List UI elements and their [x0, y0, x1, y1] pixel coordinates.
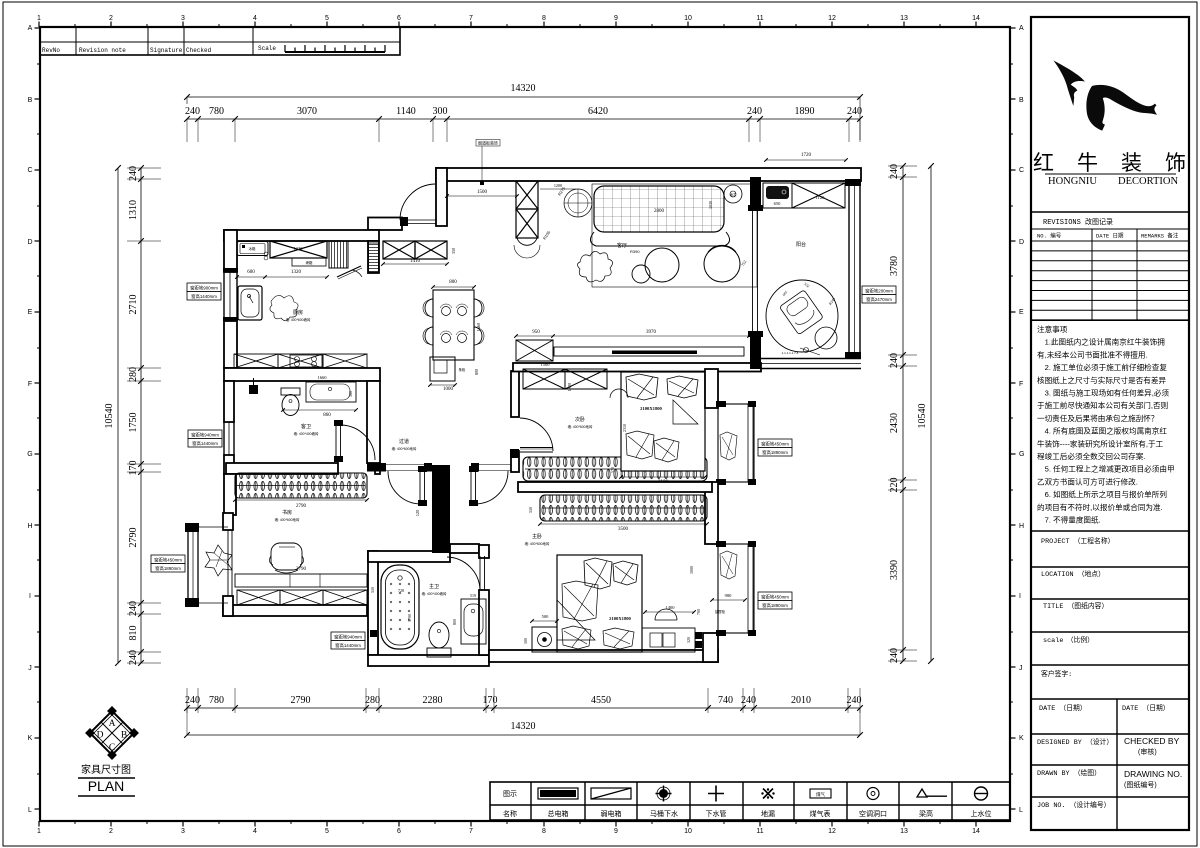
- svg-text:3: 3: [181, 828, 185, 835]
- svg-text:窗高1890mm: 窗高1890mm: [762, 602, 788, 609]
- svg-text:JOB NO. （设计编号）: JOB NO. （设计编号）: [1037, 800, 1110, 810]
- svg-text:740: 740: [718, 695, 733, 706]
- svg-text:1310: 1310: [128, 200, 139, 220]
- svg-text:10540: 10540: [104, 404, 115, 429]
- svg-text:13: 13: [900, 15, 908, 22]
- svg-text:2430: 2430: [889, 413, 900, 433]
- svg-text:2. 施工单位必须于施工前仔细检查复: 2. 施工单位必须于施工前仔细检查复: [1037, 362, 1167, 372]
- svg-text:810: 810: [128, 626, 139, 641]
- svg-text:2790: 2790: [291, 695, 311, 706]
- svg-text:3. 图纸与施工现场如有任何差异,必须: 3. 图纸与施工现场如有任何差异,必须: [1037, 388, 1169, 398]
- svg-text:墙: 400*600地砖: 墙: 400*600地砖: [525, 541, 550, 546]
- svg-text:牛装饰----家装研究所设计室所有,于工: 牛装饰----家装研究所设计室所有,于工: [1037, 438, 1164, 448]
- svg-text:红牛装饰: 红牛装饰: [1033, 152, 1200, 175]
- svg-text:240: 240: [747, 106, 762, 117]
- svg-text:5. 任何工程上之增减更改项目必须由甲: 5. 任何工程上之增减更改项目必须由甲: [1037, 464, 1175, 474]
- svg-text:CHECKED BY: CHECKED BY: [1124, 736, 1180, 746]
- svg-text:10: 10: [684, 828, 692, 835]
- svg-text:scale （比例）: scale （比例）: [1043, 635, 1094, 645]
- svg-text:G: G: [1019, 451, 1024, 458]
- svg-text:14320: 14320: [511, 721, 536, 732]
- svg-text:乙双方书面认可方可进行修改.: 乙双方书面认可方可进行修改.: [1037, 476, 1138, 486]
- svg-text:1: 1: [37, 828, 41, 835]
- svg-text:H: H: [1019, 523, 1024, 530]
- svg-text:800: 800: [452, 619, 457, 625]
- svg-text:LOCATION （地点）: LOCATION （地点）: [1041, 569, 1105, 579]
- svg-text:HONGNIU: HONGNIU: [1048, 176, 1097, 187]
- svg-text:6420: 6420: [588, 106, 608, 117]
- svg-text:2: 2: [109, 15, 113, 22]
- svg-text:1120: 1120: [816, 195, 826, 200]
- svg-text:阳台: 阳台: [796, 241, 806, 248]
- svg-text:B: B: [121, 731, 127, 741]
- svg-text:窗距地900mm: 窗距地900mm: [190, 285, 218, 292]
- svg-text:B: B: [28, 97, 33, 104]
- svg-text:I: I: [29, 593, 31, 600]
- svg-text:DATE （日期）: DATE （日期）: [1122, 704, 1170, 713]
- svg-text:下水管: 下水管: [706, 809, 727, 818]
- svg-text:D: D: [27, 239, 32, 246]
- svg-text:于施工前尽快通知本公司有关部门,否则: 于施工前尽快通知本公司有关部门,否则: [1037, 400, 1168, 410]
- svg-text:G: G: [27, 451, 32, 458]
- svg-text:570: 570: [610, 467, 615, 473]
- svg-text:7: 7: [469, 828, 473, 835]
- svg-text:3970: 3970: [646, 330, 657, 335]
- svg-text:1000: 1000: [443, 387, 454, 392]
- svg-text:RevNo: RevNo: [42, 47, 60, 54]
- svg-text:窗距地940mm: 窗距地940mm: [334, 634, 362, 641]
- svg-text:抽屉柜: 抽屉柜: [715, 609, 726, 614]
- svg-text:梁高: 梁高: [919, 809, 933, 818]
- svg-text:马桶下水: 马桶下水: [650, 809, 678, 818]
- svg-text:2790: 2790: [128, 528, 139, 548]
- svg-text:9: 9: [614, 828, 618, 835]
- svg-text:空调洞口: 空调洞口: [859, 809, 887, 818]
- svg-text:C: C: [109, 743, 115, 753]
- svg-text:墙: 400*600地砖: 墙: 400*600地砖: [275, 517, 300, 522]
- svg-text:核图纸上之尺寸与实际尺寸是否有差异: 核图纸上之尺寸与实际尺寸是否有差异: [1037, 375, 1166, 385]
- svg-text:2310: 2310: [622, 424, 627, 432]
- svg-text:A: A: [109, 719, 116, 729]
- svg-text:墙: 400*400墙砖: 墙: 400*400墙砖: [422, 591, 447, 596]
- svg-text:300: 300: [433, 106, 448, 117]
- svg-text:D: D: [97, 731, 104, 741]
- svg-text:11: 11: [756, 828, 763, 835]
- svg-text:墙: 400*600地砖: 墙: 400*600地砖: [392, 446, 417, 451]
- svg-text:120: 120: [415, 510, 420, 516]
- svg-text:墙: 400*600地砖: 墙: 400*600地砖: [568, 424, 593, 429]
- svg-text:煤气表: 煤气表: [810, 809, 831, 818]
- svg-text:240: 240: [185, 106, 200, 117]
- svg-text:厨房: 厨房: [293, 309, 303, 316]
- svg-text:上水位: 上水位: [971, 809, 992, 818]
- svg-text:1410: 1410: [410, 259, 421, 264]
- svg-text:Signature: Signature: [150, 47, 183, 54]
- svg-text:728: 728: [398, 588, 404, 593]
- svg-text:2280: 2280: [423, 695, 443, 706]
- svg-text:2100X1800: 2100X1800: [640, 406, 662, 411]
- svg-text:240: 240: [847, 106, 862, 117]
- svg-text:1720: 1720: [801, 153, 812, 158]
- svg-text:窗高1440mm: 窗高1440mm: [192, 440, 218, 447]
- svg-text:860: 860: [323, 413, 331, 418]
- svg-text:2790: 2790: [296, 567, 307, 572]
- svg-text:注意事项: 注意事项: [1037, 324, 1068, 334]
- svg-text:3500: 3500: [618, 527, 629, 532]
- svg-text:A: A: [28, 25, 33, 32]
- svg-text:780: 780: [209, 106, 224, 117]
- svg-text:煤气: 煤气: [816, 791, 825, 798]
- svg-text:烟道板装饰: 烟道板装饰: [478, 140, 498, 146]
- svg-text:11: 11: [756, 15, 763, 22]
- svg-text:14320: 14320: [511, 83, 536, 94]
- svg-text:1.1.1.1.1.7.8: 1.1.1.1.1.7.8: [782, 351, 799, 355]
- svg-text:客户签字:: 客户签字:: [1041, 669, 1072, 679]
- svg-text:800: 800: [474, 369, 479, 375]
- svg-text:窗高1890mm: 窗高1890mm: [155, 565, 181, 572]
- svg-text:TITLE （图纸内容）: TITLE （图纸内容）: [1043, 601, 1108, 611]
- svg-text:程竣工后必须全数交回公司存案.: 程竣工后必须全数交回公司存案.: [1037, 451, 1145, 461]
- svg-text:3: 3: [181, 15, 185, 22]
- svg-text:2710: 2710: [128, 295, 139, 315]
- svg-text:1320: 1320: [291, 270, 302, 275]
- svg-text:12: 12: [828, 828, 836, 835]
- svg-text:1660: 1660: [318, 375, 328, 380]
- svg-text:总电箱: 总电箱: [548, 809, 569, 818]
- svg-text:6: 6: [397, 828, 401, 835]
- svg-text:墙: 400*400墙砖: 墙: 400*400墙砖: [294, 431, 319, 436]
- svg-text:过道: 过道: [399, 438, 409, 445]
- svg-text:519: 519: [470, 593, 476, 598]
- svg-text:客厅: 客厅: [617, 242, 627, 249]
- svg-text:C: C: [1019, 167, 1024, 174]
- svg-text:的项目有不符时,以报价单或合同为准.: 的项目有不符时,以报价单或合同为准.: [1037, 502, 1163, 512]
- svg-text:1500: 1500: [541, 362, 551, 367]
- svg-text:窗距地940mm: 窗距地940mm: [191, 432, 219, 439]
- svg-text:2800: 2800: [654, 209, 665, 214]
- svg-text:4. 所有底图及蓝图之版权均属南京红: 4. 所有底图及蓝图之版权均属南京红: [1037, 426, 1167, 436]
- svg-text:14: 14: [972, 15, 980, 22]
- svg-text:1: 1: [37, 15, 41, 22]
- svg-text:PLAN: PLAN: [88, 778, 125, 794]
- svg-text:C: C: [27, 167, 32, 174]
- svg-text:4: 4: [253, 15, 257, 22]
- svg-text:1890: 1890: [795, 106, 815, 117]
- svg-text:DECORTION: DECORTION: [1118, 176, 1178, 187]
- svg-text:J: J: [28, 665, 32, 672]
- svg-text:DESIGNED BY （设计）: DESIGNED BY （设计）: [1037, 737, 1113, 747]
- svg-text:280: 280: [128, 367, 139, 382]
- svg-text:500: 500: [523, 638, 528, 644]
- svg-text:窗距地450mm: 窗距地450mm: [154, 557, 182, 564]
- svg-text:1700: 1700: [407, 614, 412, 622]
- svg-text:4: 4: [253, 828, 257, 835]
- svg-text:13: 13: [900, 828, 908, 835]
- svg-text:5: 5: [325, 828, 329, 835]
- svg-text:10540: 10540: [917, 404, 928, 429]
- svg-text:F: F: [1019, 381, 1023, 388]
- svg-text:窗距地450mm: 窗距地450mm: [761, 594, 789, 601]
- svg-text:1220: 1220: [294, 246, 304, 251]
- svg-text:地芯: 地芯: [730, 192, 737, 197]
- svg-text:Checked: Checked: [186, 47, 212, 54]
- svg-text:520: 520: [686, 637, 691, 643]
- svg-text:冰箱: 冰箱: [249, 246, 256, 251]
- svg-text:980: 980: [725, 593, 733, 598]
- svg-text:1140: 1140: [396, 106, 416, 117]
- svg-text:主卧: 主卧: [532, 533, 542, 540]
- svg-text:1000: 1000: [689, 566, 694, 574]
- svg-text:700: 700: [696, 609, 701, 615]
- svg-text:950: 950: [532, 330, 540, 335]
- svg-text:1460: 1460: [476, 323, 481, 331]
- svg-text:H: H: [27, 523, 32, 530]
- svg-text:K: K: [1019, 735, 1024, 742]
- svg-text:3390: 3390: [889, 560, 900, 580]
- svg-text:2: 2: [109, 828, 113, 835]
- svg-text:3780: 3780: [889, 256, 900, 276]
- svg-text:书房: 书房: [282, 509, 292, 516]
- svg-text:550: 550: [528, 507, 533, 513]
- svg-text:(图纸编号): (图纸编号): [1124, 780, 1157, 789]
- svg-text:F: F: [28, 381, 32, 388]
- svg-text:条柜: 条柜: [459, 367, 466, 372]
- svg-text:1500: 1500: [477, 190, 488, 195]
- svg-text:1750: 1750: [128, 413, 139, 433]
- svg-text:DATE 日期: DATE 日期: [1096, 233, 1124, 240]
- svg-text:2010: 2010: [791, 695, 811, 706]
- svg-text:窗高2470mm: 窗高2470mm: [866, 296, 892, 303]
- svg-text:650: 650: [774, 201, 782, 206]
- svg-text:3070: 3070: [297, 106, 317, 117]
- svg-text:1800: 1800: [567, 383, 572, 391]
- svg-text:L: L: [1019, 807, 1023, 814]
- svg-text:I: I: [1019, 593, 1021, 600]
- svg-text:DATE （日期）: DATE （日期）: [1039, 704, 1087, 713]
- svg-text:350: 350: [451, 248, 456, 254]
- svg-text:家具尺寸图: 家具尺寸图: [81, 763, 131, 776]
- svg-text:D: D: [1019, 239, 1024, 246]
- svg-text:6: 6: [397, 15, 401, 22]
- svg-text:(审核): (审核): [1138, 747, 1157, 756]
- svg-text:NO. 编号: NO. 编号: [1037, 232, 1062, 240]
- svg-text:DRAWN BY （绘图）: DRAWN BY （绘图）: [1037, 768, 1101, 778]
- svg-text:240: 240: [847, 695, 862, 706]
- svg-text:B: B: [1019, 97, 1024, 104]
- svg-text:280: 280: [365, 695, 380, 706]
- svg-text:560: 560: [348, 391, 353, 397]
- svg-text:2100X1800: 2100X1800: [609, 616, 631, 621]
- svg-text:1030: 1030: [708, 201, 713, 209]
- svg-text:主卫: 主卫: [429, 583, 439, 590]
- svg-text:DRAWING NO.: DRAWING NO.: [1124, 769, 1182, 779]
- svg-text:次卧: 次卧: [575, 416, 585, 423]
- svg-text:5: 5: [325, 15, 329, 22]
- svg-text:600: 600: [247, 270, 255, 275]
- svg-text:8: 8: [542, 828, 546, 835]
- svg-text:R390: R390: [630, 249, 640, 254]
- svg-text:窗高1890mm: 窗高1890mm: [762, 449, 788, 456]
- svg-text:A: A: [1019, 25, 1024, 32]
- svg-text:窗距地200mm: 窗距地200mm: [865, 288, 893, 295]
- svg-text:1.此图纸内之设计属南京红牛装饰拥: 1.此图纸内之设计属南京红牛装饰拥: [1037, 337, 1165, 347]
- svg-text:4550: 4550: [591, 695, 611, 706]
- svg-text:K: K: [28, 735, 33, 742]
- svg-text:L: L: [28, 807, 32, 814]
- svg-text:REVISIONS 改图记录: REVISIONS 改图记录: [1043, 217, 1113, 227]
- svg-text:170: 170: [483, 695, 498, 706]
- svg-text:J: J: [1019, 665, 1023, 672]
- svg-text:窗高1440mm: 窗高1440mm: [191, 293, 217, 300]
- svg-text:弱电箱: 弱电箱: [601, 809, 622, 818]
- svg-text:E: E: [28, 309, 33, 316]
- svg-text:10: 10: [684, 15, 692, 22]
- svg-text:一切责任及后果将由承包之施刮怀？: 一切责任及后果将由承包之施刮怀？: [1037, 413, 1159, 423]
- svg-text:1400: 1400: [666, 605, 676, 610]
- svg-text:170: 170: [128, 461, 139, 476]
- svg-text:780: 780: [209, 695, 224, 706]
- svg-text:有,未经本公司书面批准不得擅用.: 有,未经本公司书面批准不得擅用.: [1037, 349, 1148, 359]
- svg-text:550: 550: [370, 587, 375, 593]
- svg-text:12: 12: [828, 15, 836, 22]
- svg-text:E: E: [1019, 309, 1024, 316]
- svg-text:7. 不得量度图纸.: 7. 不得量度图纸.: [1037, 515, 1101, 525]
- svg-text:客卫: 客卫: [301, 423, 311, 430]
- svg-text:Scale: Scale: [258, 45, 276, 52]
- svg-text:Revision note: Revision note: [79, 47, 126, 54]
- svg-text:500: 500: [542, 614, 550, 619]
- svg-text:9: 9: [614, 15, 618, 22]
- svg-text:PROJECT （工程名称）: PROJECT （工程名称）: [1041, 536, 1114, 546]
- svg-text:墙: 400*600墙砖: 墙: 400*600墙砖: [286, 317, 311, 322]
- svg-text:6. 如图纸上所示之项目与报价单所列: 6. 如图纸上所示之项目与报价单所列: [1037, 489, 1167, 499]
- svg-text:窗距地450mm: 窗距地450mm: [761, 441, 789, 448]
- svg-text:7: 7: [469, 15, 473, 22]
- svg-text:REMARKS 备注: REMARKS 备注: [1141, 232, 1179, 240]
- svg-text:14: 14: [972, 828, 980, 835]
- svg-text:2790: 2790: [296, 504, 307, 509]
- svg-text:图示: 图示: [503, 790, 517, 798]
- svg-text:名称: 名称: [503, 809, 517, 818]
- svg-text:窗高1440mm: 窗高1440mm: [335, 642, 361, 649]
- svg-text:地漏: 地漏: [761, 809, 775, 818]
- svg-text:8: 8: [542, 15, 546, 22]
- svg-text:烤箱: 烤箱: [306, 260, 313, 265]
- svg-text:800: 800: [449, 280, 457, 285]
